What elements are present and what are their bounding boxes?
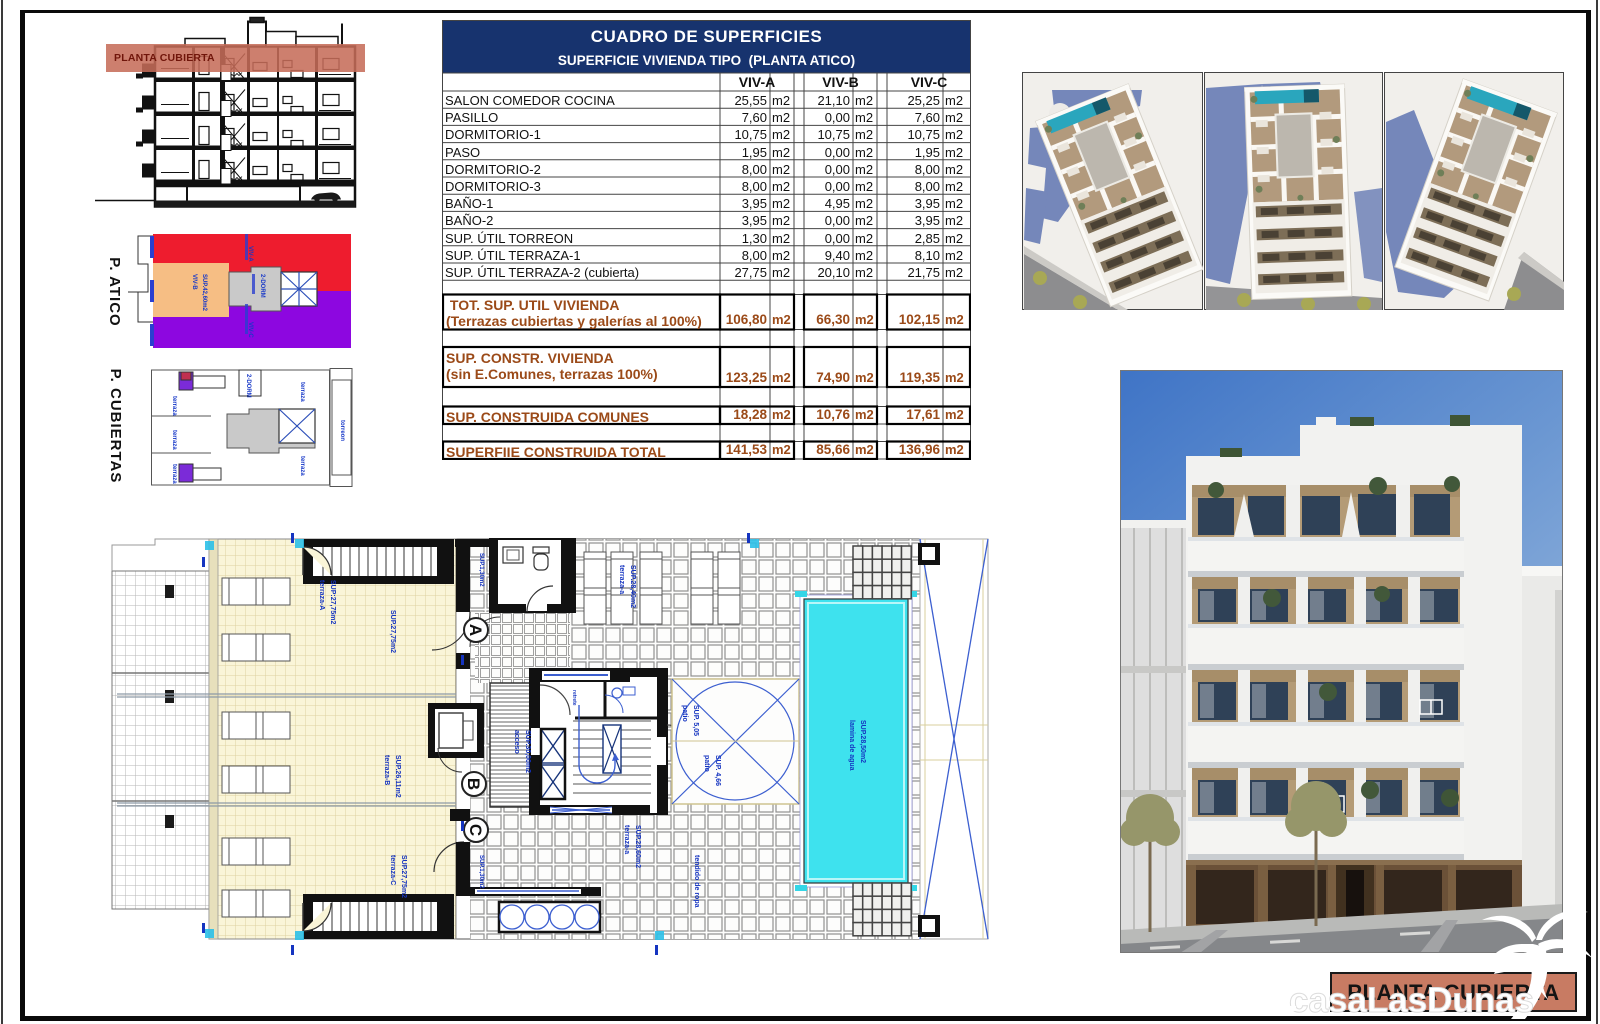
svg-text:SUP. 4,66: SUP. 4,66: [714, 755, 721, 786]
svg-text:terraza-A: terraza-A: [318, 580, 325, 610]
svg-text:A: A: [466, 624, 485, 636]
svg-text:SUP. 5,05: SUP. 5,05: [692, 705, 699, 736]
svg-text:terraza-C: terraza-C: [389, 855, 396, 885]
svg-text:terraza: terraza: [171, 464, 177, 484]
svg-text:VIV-B: VIV-B: [191, 274, 197, 290]
svg-text:patio: patio: [681, 705, 688, 722]
svg-text:terraza: terraza: [171, 430, 177, 450]
svg-text:terraza-a: terraza-a: [618, 565, 625, 594]
svg-text:SUP.26,11m2: SUP.26,11m2: [394, 755, 401, 798]
svg-text:SUP.1,30m2: SUP.1,30m2: [478, 855, 484, 889]
svg-text:terraza-B: terraza-B: [383, 755, 390, 785]
svg-text:acceso: acceso: [513, 730, 520, 754]
svg-text:SUP.27,75m2: SUP.27,75m2: [400, 855, 407, 898]
svg-text:terraza: terraza: [171, 396, 177, 416]
svg-text:SUP.28,60m2: SUP.28,60m2: [634, 825, 641, 868]
svg-text:SUP.27,75m2: SUP.27,75m2: [389, 610, 396, 653]
svg-text:patio: patio: [703, 755, 710, 772]
svg-text:retrete: retrete: [571, 690, 577, 706]
svg-text:terraza: terraza: [299, 456, 305, 476]
svg-text:SUP:27,75m2: SUP:27,75m2: [329, 580, 336, 624]
svg-text:torreon: torreon: [339, 420, 345, 441]
svg-text:2-DORM: 2-DORM: [259, 274, 265, 298]
svg-text:lamina de agua: lamina de agua: [848, 720, 855, 771]
svg-text:SUP.30,00m2: SUP.30,00m2: [524, 730, 531, 773]
svg-text:terraza: terraza: [299, 382, 305, 402]
svg-text:B: B: [464, 778, 483, 790]
svg-text:SUP.28,40m2: SUP.28,40m2: [629, 565, 636, 608]
svg-text:tendido de ropa: tendido de ropa: [693, 855, 700, 908]
svg-text:SUP.28,50m2: SUP.28,50m2: [859, 720, 866, 763]
svg-text:SUP.1,30m2: SUP.1,30m2: [478, 553, 484, 587]
svg-text:2-DORM: 2-DORM: [245, 374, 251, 398]
svg-text:terraza-a: terraza-a: [623, 825, 630, 854]
svg-text:SUP.42,60m2: SUP.42,60m2: [201, 274, 207, 312]
svg-text:C: C: [466, 824, 485, 836]
